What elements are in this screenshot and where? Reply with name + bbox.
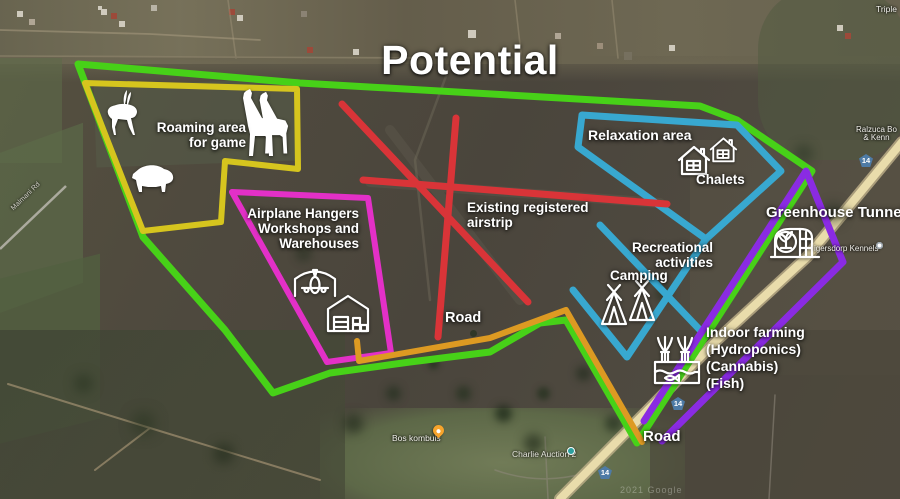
hangars-label-line2: Workshops and (247, 221, 359, 236)
roaming-label-line2: for game (157, 135, 246, 150)
warehouse-icon (328, 296, 368, 331)
terrain-bottom-left (0, 330, 345, 499)
tent-icon-2 (630, 281, 654, 320)
map-label-triple: Triple (876, 4, 897, 14)
airstrip-line-2 (438, 118, 456, 337)
chalets-label: Chalets (696, 172, 745, 187)
hangar-plane-icon (295, 270, 335, 296)
map-label-ralzuca-line2: & Kenn (856, 134, 897, 142)
boar-icon (132, 165, 173, 192)
recreation-label-line1: Recreational (632, 240, 713, 255)
tree-clusters (470, 330, 477, 337)
recreation-label: Recreational activities (632, 240, 713, 270)
houses-dots (98, 6, 102, 10)
road-label-center: Road (445, 310, 481, 326)
relaxation-label: Relaxation area (588, 128, 692, 144)
page-title: Potential (381, 38, 559, 84)
greenhouse-label: Greenhouse Tunnels (766, 205, 900, 222)
map-label-ralzuca: Ralzuca Bo & Kenn (856, 126, 897, 142)
route-shield-text: 14 (674, 399, 682, 408)
tent-icon (602, 285, 626, 324)
map-label-bos-kombuis: Bos kombuis (392, 433, 441, 443)
indoor-farming-label: Indoor farming (Hydroponics) (Cannabis) … (706, 324, 805, 392)
hangars-label: Airplane Hangers Workshops and Warehouse… (247, 206, 359, 251)
hangars-label-line1: Airplane Hangers (247, 206, 359, 221)
google-watermark: 2021 Google (620, 485, 683, 495)
map-label-kennels: igersdorp Kennels (814, 244, 878, 253)
hangars-label-line3: Warehouses (247, 236, 359, 251)
restaurant-pin-dot (436, 428, 442, 434)
indoor-farming-line1: Indoor farming (706, 324, 805, 341)
kennels-pin (876, 242, 883, 249)
airstrip-label: Existing registered airstrip (467, 200, 589, 230)
camping-label: Camping (610, 268, 668, 283)
terrain-left-field-3 (0, 58, 62, 163)
indoor-farming-line2: (Hydroponics) (706, 341, 805, 358)
satellite-map: Potential Roaming area for game Airplane… (0, 0, 900, 499)
airstrip-label-line2: airstrip (467, 215, 589, 230)
farm-track (415, 60, 452, 300)
airstrip-label-line1: Existing registered (467, 200, 589, 215)
indoor-farming-line3: (Cannabis) (706, 358, 805, 375)
roaming-label-line1: Roaming area (157, 120, 246, 135)
indoor-farming-line4: (Fish) (706, 375, 805, 392)
route-shield-text: 14 (601, 468, 609, 477)
route-shield-text: 14 (862, 156, 870, 165)
auction-pin (567, 447, 575, 455)
road-label-bottom: Road (643, 429, 681, 446)
roaming-label: Roaming area for game (157, 120, 246, 150)
